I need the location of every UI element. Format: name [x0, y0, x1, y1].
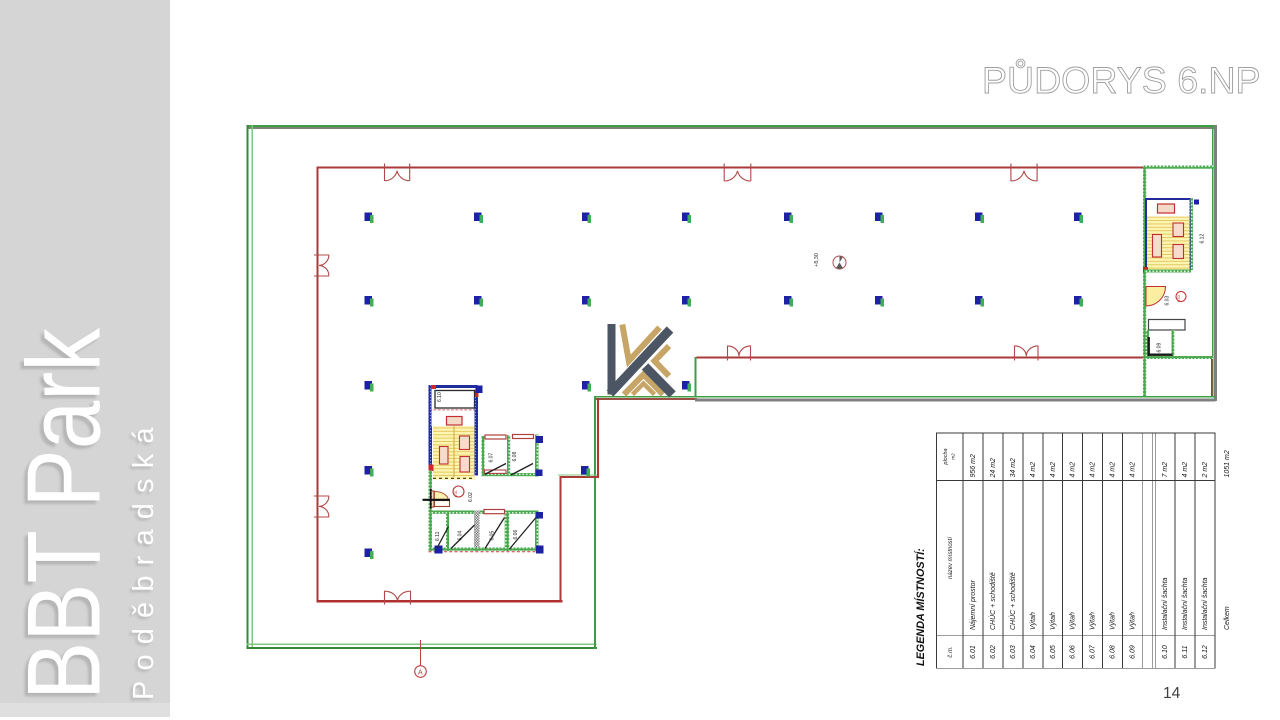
svg-text:4 m2: 4 m2: [1110, 462, 1117, 478]
svg-text:6.09: 6.09: [1157, 343, 1163, 353]
svg-text:4 m2: 4 m2: [1090, 462, 1097, 478]
svg-text:2 m2: 2 m2: [1202, 462, 1209, 479]
svg-text:Výtah: Výtah: [1030, 612, 1037, 630]
svg-text:Instalační šachta: Instalační šachta: [1162, 577, 1169, 630]
svg-text:6.02: 6.02: [468, 492, 474, 502]
svg-text:6.01: 6.01: [970, 645, 977, 659]
svg-text:6.08: 6.08: [512, 452, 518, 462]
svg-text:6.09: 6.09: [1129, 645, 1136, 659]
svg-text:Celkem: Celkem: [1224, 606, 1231, 630]
svg-text:6.10: 6.10: [1162, 645, 1169, 659]
svg-text:6.03: 6.03: [1177, 295, 1181, 302]
svg-text:6.08: 6.08: [1110, 645, 1117, 659]
svg-text:CHÚC + schodiště: CHÚC + schodiště: [1008, 572, 1017, 630]
svg-text:6.03: 6.03: [1010, 645, 1017, 659]
svg-text:34 m2: 34 m2: [1010, 458, 1017, 478]
svg-text:+8,30: +8,30: [814, 253, 820, 267]
svg-text:plocha: plocha: [943, 448, 949, 465]
svg-text:6.05: 6.05: [490, 531, 496, 541]
svg-text:7 m2: 7 m2: [1162, 462, 1169, 478]
svg-text:A: A: [418, 670, 423, 677]
svg-text:6.11: 6.11: [1182, 645, 1189, 658]
svg-text:Výtah: Výtah: [1110, 612, 1117, 630]
svg-text:LEGENDA MÍSTNOSTÍ:: LEGENDA MÍSTNOSTÍ:: [914, 548, 927, 666]
svg-text:24 m2: 24 m2: [990, 458, 997, 479]
svg-text:Výtah: Výtah: [1090, 612, 1097, 630]
svg-text:PŮDORYS 6.NP: PŮDORYS 6.NP: [982, 59, 1261, 101]
svg-text:6.04: 6.04: [458, 531, 464, 541]
svg-text:4 m2: 4 m2: [1182, 462, 1189, 478]
svg-text:Výtah: Výtah: [1129, 612, 1136, 630]
svg-text:14: 14: [1163, 685, 1181, 702]
svg-text:6.06: 6.06: [513, 530, 519, 540]
svg-text:6.11: 6.11: [435, 531, 441, 541]
svg-text:Výtah: Výtah: [1070, 612, 1077, 630]
svg-text:1051 m2: 1051 m2: [1224, 450, 1231, 477]
svg-text:6.05: 6.05: [1050, 645, 1057, 659]
svg-text:956 m2: 956 m2: [970, 454, 977, 477]
svg-text:BBT Park: BBT Park: [7, 327, 123, 700]
svg-text:6.07: 6.07: [489, 453, 495, 463]
svg-text:6.12: 6.12: [1202, 645, 1209, 659]
svg-text:4 m2: 4 m2: [1050, 462, 1057, 478]
svg-text:6.06: 6.06: [1070, 645, 1077, 659]
svg-text:6.12: 6.12: [1200, 234, 1206, 244]
svg-text:Nájemní prostor: Nájemní prostor: [970, 580, 977, 630]
svg-text:Výtah: Výtah: [1050, 612, 1057, 630]
svg-text:4 m2: 4 m2: [1129, 462, 1136, 478]
svg-text:4 m2: 4 m2: [1030, 462, 1037, 478]
svg-text:Instalační šachta: Instalační šachta: [1182, 577, 1189, 630]
svg-text:Poděbradská: Poděbradská: [128, 416, 160, 700]
svg-text:6.03: 6.03: [1165, 296, 1171, 306]
svg-text:6.10: 6.10: [437, 392, 443, 402]
svg-text:CHÚC + schodiště: CHÚC + schodiště: [988, 572, 997, 630]
svg-text:4 m2: 4 m2: [1070, 462, 1077, 478]
svg-text:6.01: 6.01: [454, 490, 458, 497]
svg-text:Instalační šachta: Instalační šachta: [1202, 577, 1209, 630]
svg-text:název místností: název místností: [948, 536, 954, 579]
svg-text:6.02: 6.02: [990, 645, 997, 659]
svg-text:č.m.: č.m.: [948, 646, 954, 657]
svg-text:m2: m2: [951, 453, 956, 460]
svg-text:6.04: 6.04: [1030, 645, 1037, 659]
svg-text:6.07: 6.07: [1090, 644, 1097, 659]
